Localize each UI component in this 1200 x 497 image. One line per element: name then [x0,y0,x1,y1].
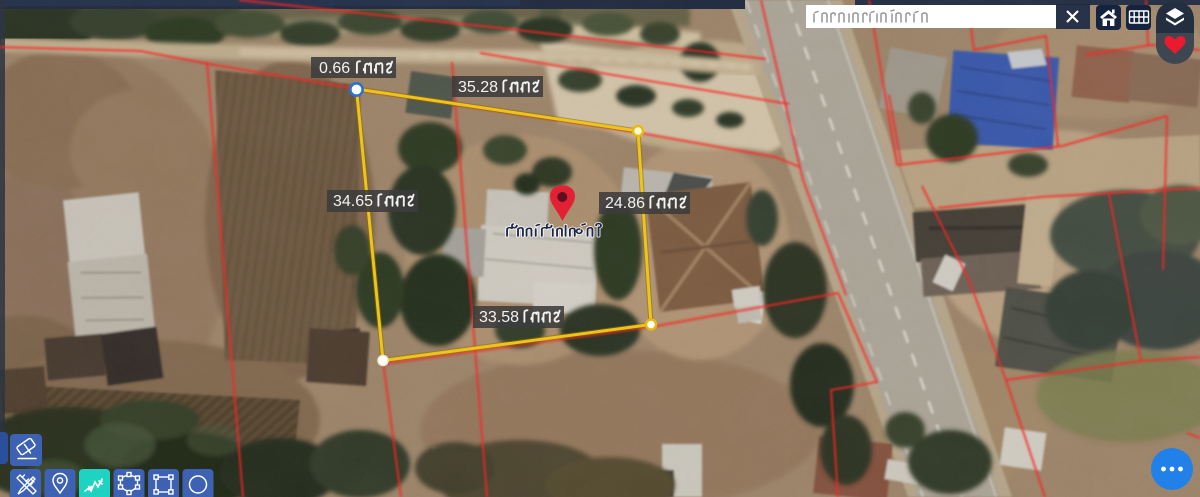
svg-text:35.28: 35.28 [458,79,498,96]
svg-text:34.65: 34.65 [333,193,373,210]
svg-text:33.58: 33.58 [479,309,519,326]
svg-text:0.66: 0.66 [319,60,350,77]
svg-text:24.86: 24.86 [605,195,645,212]
